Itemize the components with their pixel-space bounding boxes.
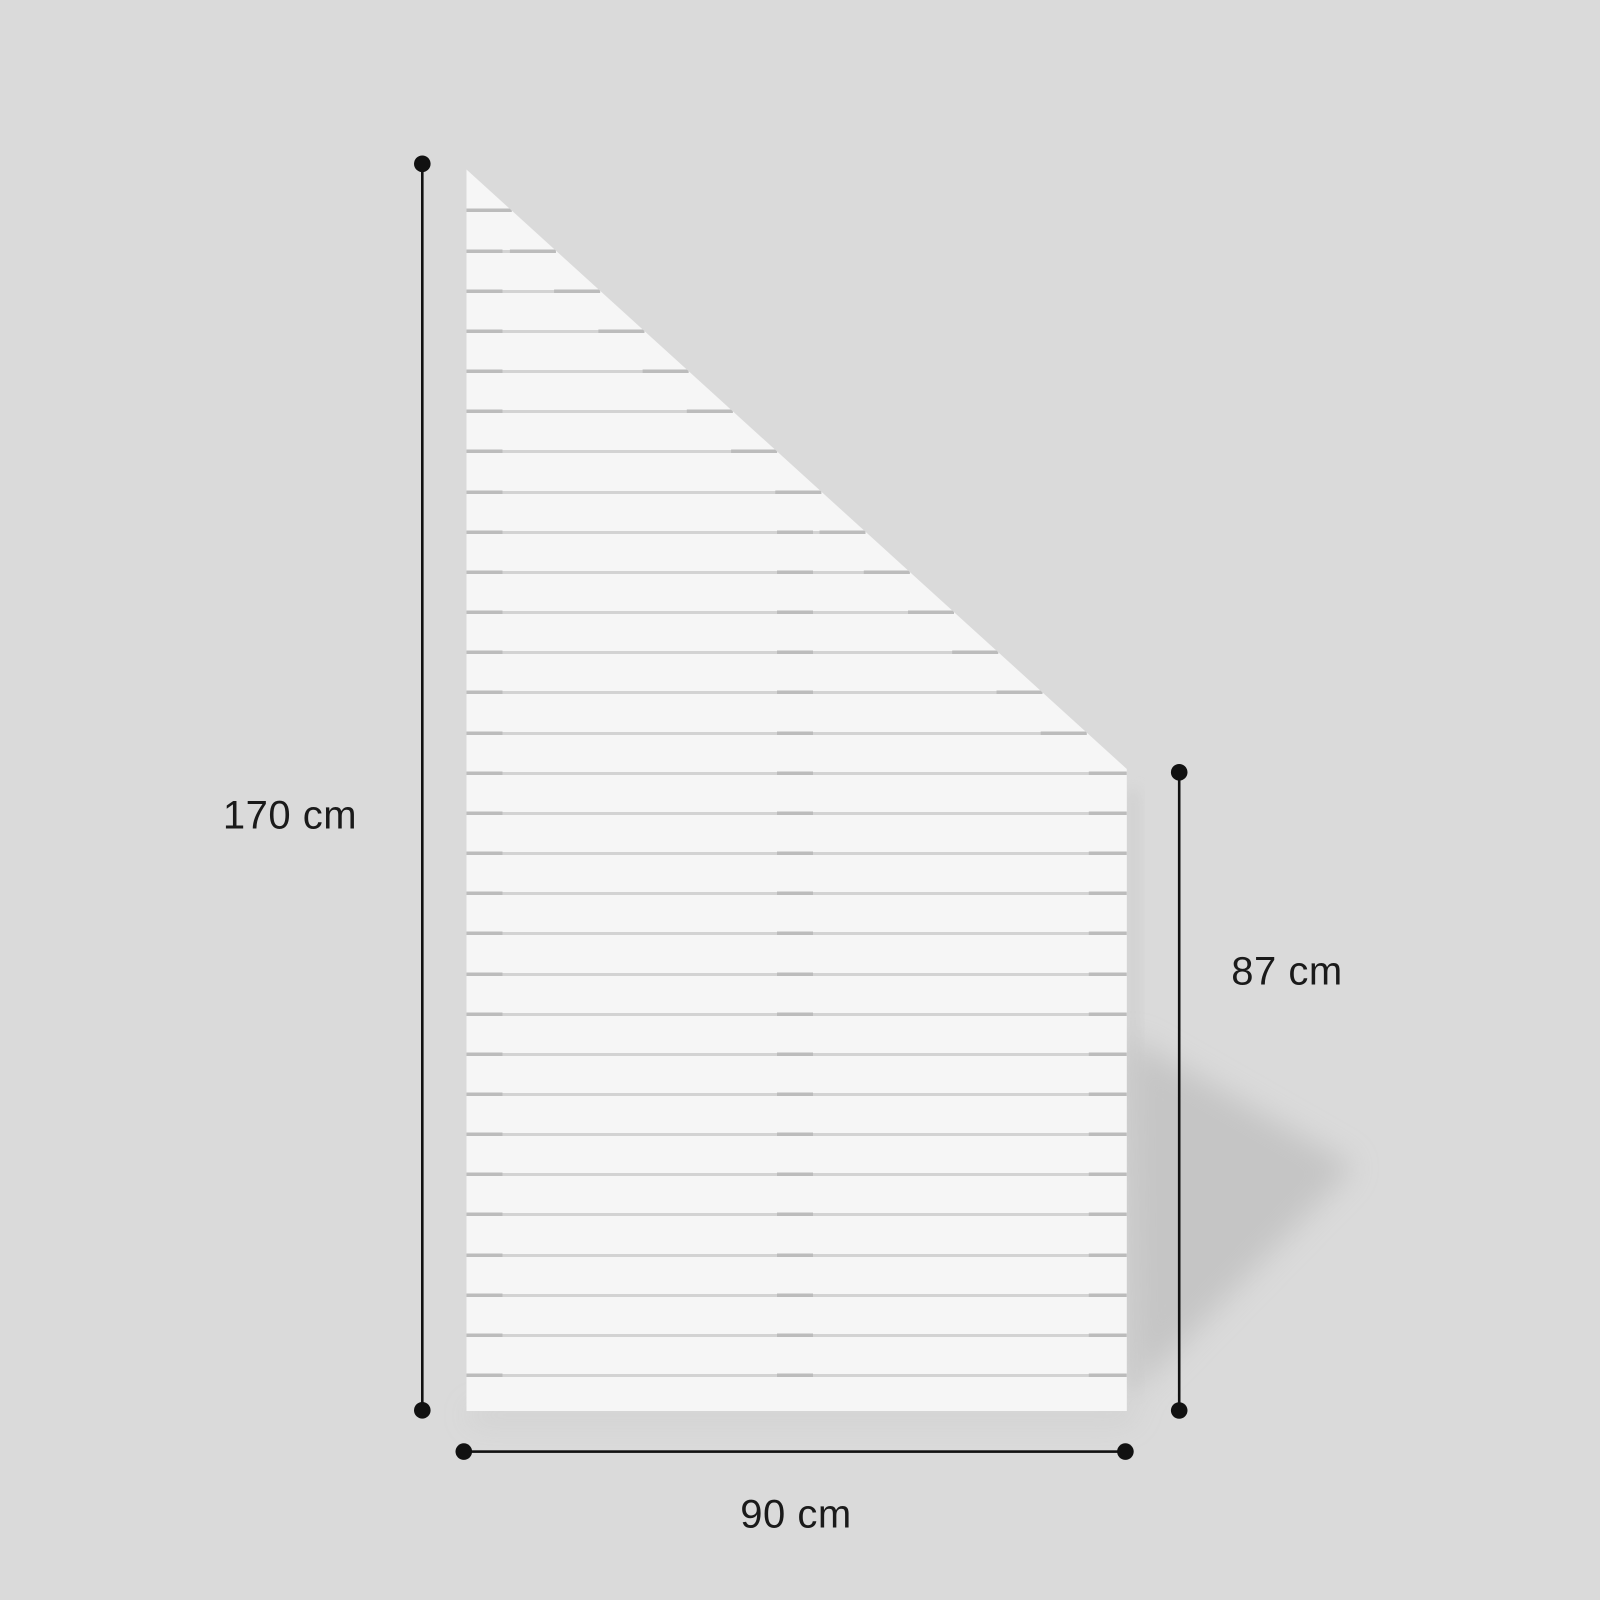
svg-text:87 cm: 87 cm [1231, 950, 1342, 994]
svg-text:90 cm: 90 cm [740, 1493, 851, 1537]
svg-text:170 cm: 170 cm [223, 794, 357, 838]
